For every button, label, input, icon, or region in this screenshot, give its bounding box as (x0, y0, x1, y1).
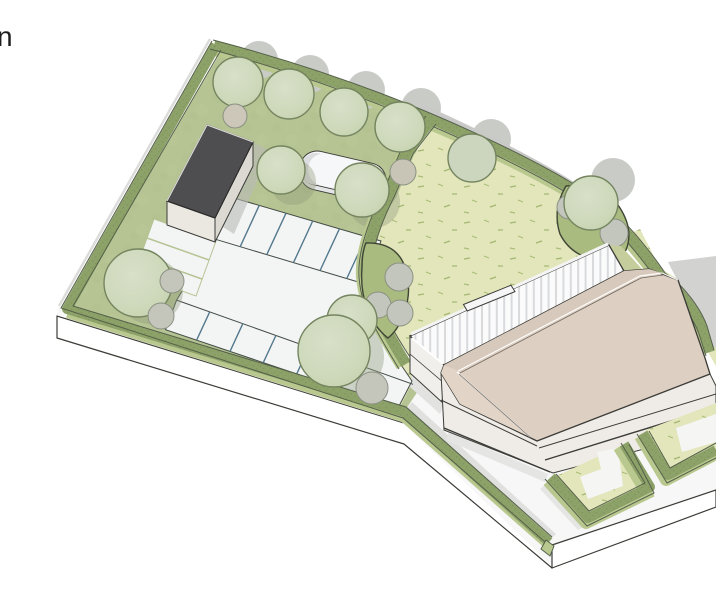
svg-text:n: n (0, 21, 13, 52)
